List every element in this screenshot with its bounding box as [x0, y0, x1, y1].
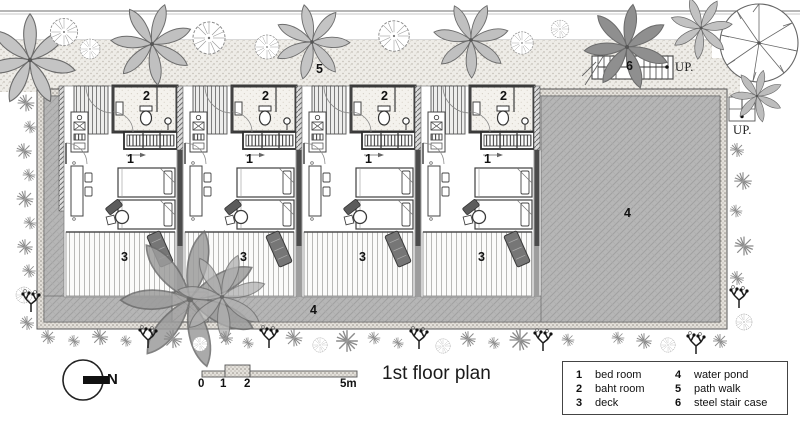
- legend-num: 5: [675, 383, 690, 395]
- room-label-deck-1: 3: [121, 251, 128, 264]
- legend-label: steel stair case: [694, 397, 781, 409]
- room-label-bedroom-1: 1: [127, 153, 134, 166]
- path-walk-label: 5: [316, 63, 323, 76]
- legend-label: water pond: [694, 369, 781, 381]
- up-label-pond-corner: UP.: [733, 124, 752, 137]
- legend-label: path walk: [694, 383, 781, 395]
- room-label-deck-3: 3: [359, 251, 366, 264]
- room-label-bathroom-2: 2: [262, 90, 269, 103]
- scale-bar: [202, 365, 357, 377]
- north-compass: [63, 360, 109, 400]
- legend: 1 bed room 4 water pond 2 baht room 5 pa…: [562, 361, 788, 415]
- legend-num: 2: [576, 383, 591, 395]
- legend-label: deck: [595, 397, 671, 409]
- stair-label: 6: [626, 60, 633, 73]
- room-label-bathroom-1: 2: [143, 90, 150, 103]
- room-label-deck-2: 3: [240, 251, 247, 264]
- room-label-bathroom-4: 2: [500, 90, 507, 103]
- room-label-bedroom-3: 1: [365, 153, 372, 166]
- scale-tick-2: 2: [244, 378, 250, 390]
- pond-label-bottom: 4: [310, 304, 317, 317]
- scale-tick-5m: 5m: [340, 378, 357, 390]
- large-round-tree: [720, 4, 798, 82]
- room-label-bathroom-3: 2: [381, 90, 388, 103]
- floor-plan-sheet: 2 2 2 2 1 1 1 1 3 3 3 3 4 4 5 6 UP. UP. …: [0, 0, 800, 421]
- room-label-bedroom-2: 1: [246, 153, 253, 166]
- legend-label: baht room: [595, 383, 671, 395]
- legend-label: bed room: [595, 369, 671, 381]
- legend-num: 1: [576, 369, 591, 381]
- room-label-deck-4: 3: [478, 251, 485, 264]
- legend-num: 6: [675, 397, 690, 409]
- pond-label-right: 4: [624, 207, 631, 220]
- scale-tick-1: 1: [220, 378, 226, 390]
- legend-num: 4: [675, 369, 690, 381]
- up-label-stair: UP.: [675, 61, 694, 74]
- scale-tick-0: 0: [198, 378, 204, 390]
- room-label-bedroom-4: 1: [484, 153, 491, 166]
- legend-num: 3: [576, 397, 591, 409]
- page-title: 1st floor plan: [382, 363, 491, 385]
- guest-units: [59, 86, 540, 297]
- north-label: N: [107, 371, 118, 388]
